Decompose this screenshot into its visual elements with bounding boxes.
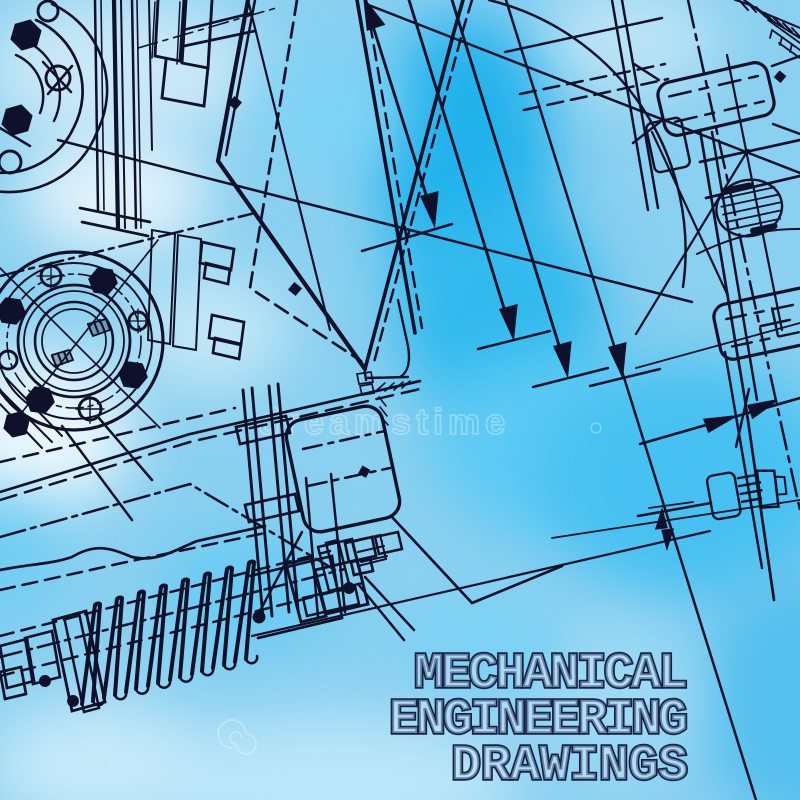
- svg-text:DRAWINGS: DRAWINGS: [451, 738, 688, 795]
